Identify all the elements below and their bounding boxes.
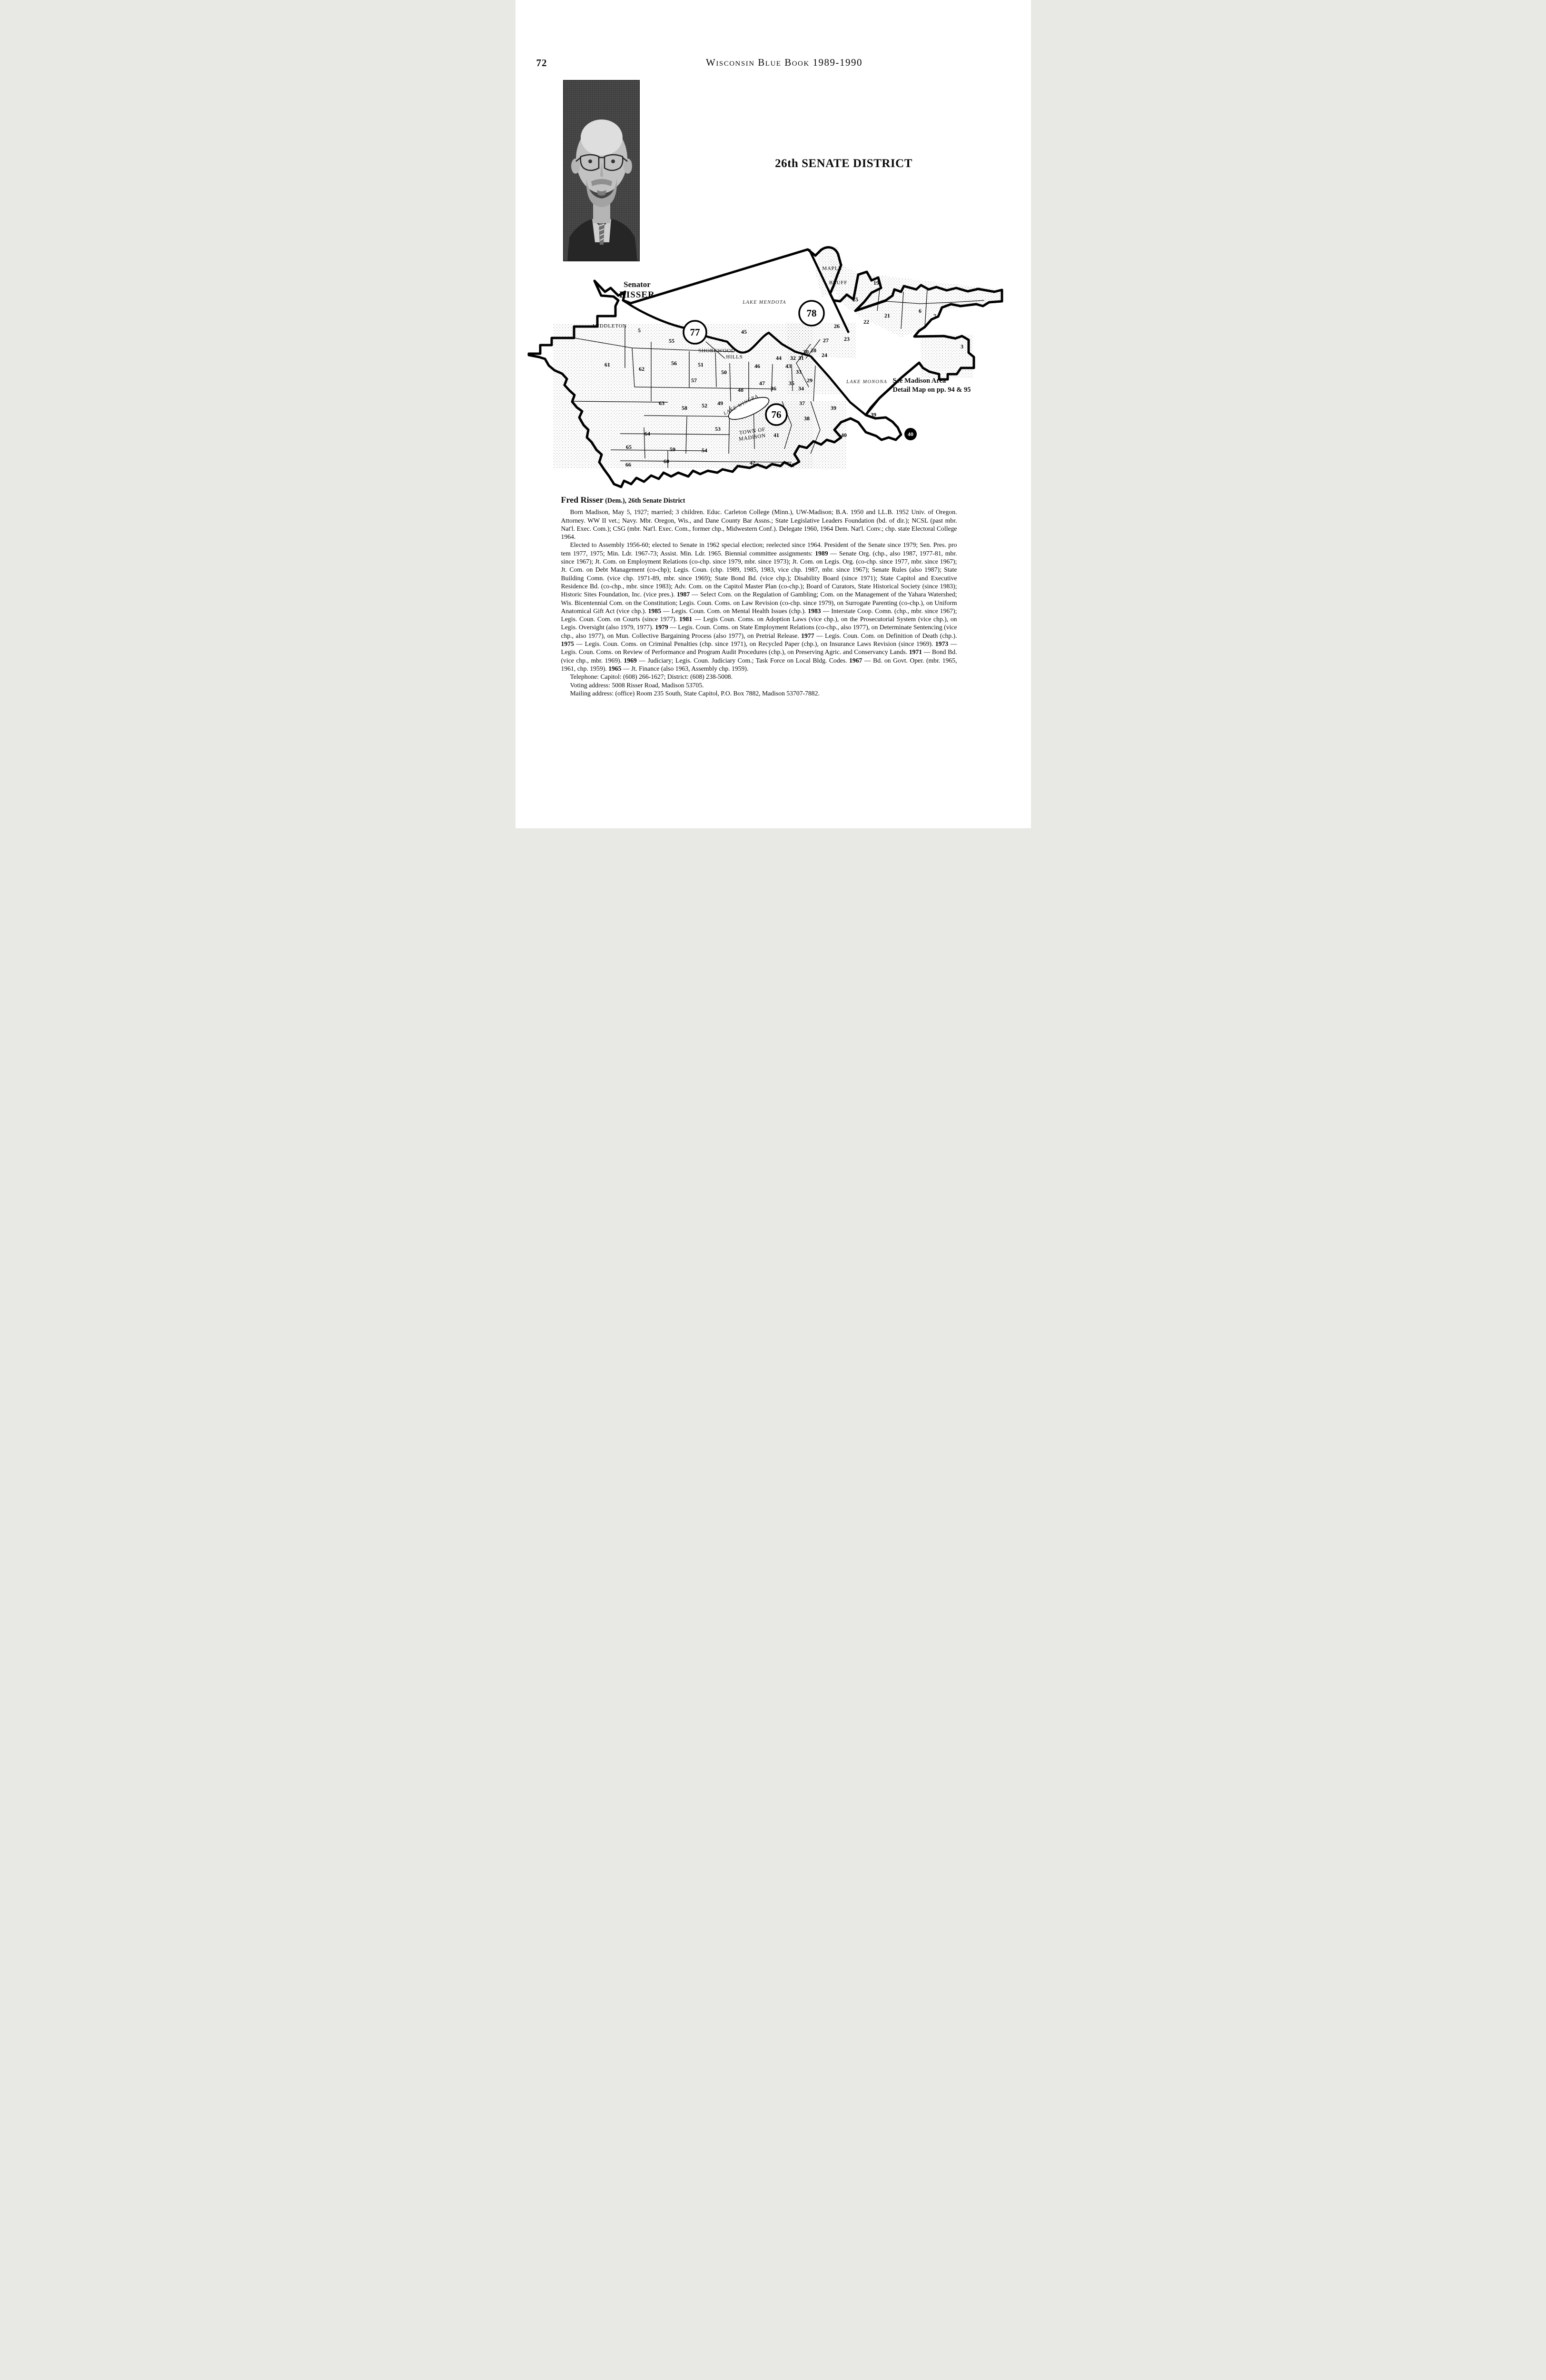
ward-number-29: 29: [807, 377, 813, 384]
ward-number-50: 50: [721, 369, 727, 376]
ward-number-63: 63: [659, 400, 664, 407]
ward-number-41: 41: [773, 432, 779, 438]
ward-number-53: 53: [715, 426, 721, 432]
ward-number-44: 44: [776, 355, 782, 361]
district-title: 26th SENATE DISTRICT: [775, 157, 912, 170]
place-label: MIDDLETON: [592, 323, 626, 329]
bio-paragraph-personal: Born Madison, May 5, 1927; married; 3 ch…: [561, 508, 957, 541]
ward-number-66: 66: [625, 461, 631, 468]
ward-number-64: 64: [644, 430, 650, 437]
map-note-line1: See Madison Area: [893, 377, 971, 386]
ward-number-32: 32: [790, 355, 796, 361]
book-page: 72 Wisconsin Blue Book 1989-1990 26th SE…: [515, 0, 1031, 828]
ward-number-62: 62: [639, 366, 644, 372]
map-detail-note: See Madison Area Detail Map on pp. 94 & …: [893, 377, 971, 395]
ward-number-3: 3: [961, 343, 963, 350]
ward-number-37: 37: [799, 400, 805, 407]
ward-number-42: 42: [750, 459, 755, 466]
ward-number-48: 48: [738, 387, 743, 393]
ward-number-40: 40: [908, 431, 913, 437]
ward-number-40: 40: [841, 432, 847, 438]
district-map: LAKE MENDOTALAKE MONONALAKE WINGRAMIDDLE…: [525, 244, 1020, 503]
senator-photo-illustration: [564, 80, 639, 261]
bio-name: Fred Risser: [561, 495, 604, 505]
ward-number-38: 38: [804, 415, 810, 422]
senator-photo: [563, 80, 640, 261]
voting-address-line: Voting address: 5008 Risser Road, Madiso…: [561, 681, 957, 689]
biography-section: Fred Risser (Dem.), 26th Senate District…: [561, 496, 957, 697]
place-label: SHOREWOOD: [698, 348, 735, 354]
ward-number-55: 55: [669, 337, 674, 344]
ward-number-5: 5: [638, 327, 641, 334]
running-header: Wisconsin Blue Book 1989-1990: [706, 57, 862, 69]
ward-number-35: 35: [789, 380, 794, 387]
bio-heading: Fred Risser (Dem.), 26th Senate District: [561, 496, 957, 505]
ward-number-6: 6: [919, 307, 922, 314]
ward-number-22: 22: [863, 318, 869, 325]
ward-number-45: 45: [741, 328, 747, 335]
ward-number-21: 21: [884, 312, 890, 319]
ward-number-56: 56: [671, 360, 677, 367]
ward-number-26: 26: [834, 323, 840, 329]
ward-number-19: 19: [873, 279, 879, 286]
ward-number-47: 47: [759, 380, 765, 387]
ward-number-27: 27: [823, 337, 829, 344]
ward-number-7: 7: [933, 313, 936, 319]
assembly-district-number-77: 77: [690, 327, 700, 338]
ward-number-39: 39: [831, 405, 836, 411]
ward-number-49: 49: [717, 400, 723, 407]
ward-number-23: 23: [844, 336, 850, 342]
lake-label: LAKE MONONA: [846, 379, 887, 385]
ward-number-59: 59: [670, 446, 675, 453]
ward-number-34: 34: [798, 385, 804, 392]
telephone-line: Telephone: Capitol: (608) 266-1627; Dist…: [561, 673, 957, 681]
assembly-district-number-76: 76: [771, 409, 781, 420]
assembly-district-number-78: 78: [806, 307, 816, 319]
ward-number-43: 43: [785, 363, 791, 369]
ward-number-36: 36: [771, 385, 776, 392]
page-number: 72: [536, 57, 547, 69]
ward-number-60: 60: [664, 458, 669, 465]
bio-paragraph-career: Elected to Assembly 1956-60; elected to …: [561, 541, 957, 673]
ward-number-41: 41: [789, 462, 794, 468]
ward-number-52: 52: [702, 402, 707, 409]
ward-number-39: 39: [871, 411, 876, 418]
ward-number-33: 33: [796, 368, 802, 375]
place-label: MAPLE: [822, 266, 842, 271]
ward-number-65: 65: [626, 444, 632, 450]
place-label: BLUFF: [829, 280, 847, 286]
contact-block: Telephone: Capitol: (608) 266-1627; Dist…: [561, 673, 957, 697]
map-note-line2: Detail Map on pp. 94 & 95: [893, 386, 971, 395]
ward-number-31: 31: [798, 355, 804, 361]
ward-number-58: 58: [682, 405, 687, 411]
lake-label: LAKE MENDOTA: [742, 300, 786, 305]
ward-number-28: 28: [811, 347, 816, 354]
ward-number-46: 46: [754, 363, 760, 369]
ward-number-57: 57: [691, 377, 697, 384]
ward-number-25: 25: [852, 296, 858, 303]
district-map-svg: LAKE MENDOTALAKE MONONALAKE WINGRAMIDDLE…: [525, 244, 1020, 503]
place-label: HILLS: [726, 354, 743, 360]
bio-name-suffix: (Dem.), 26th Senate District: [604, 497, 685, 505]
ward-number-54: 54: [702, 447, 707, 454]
ward-number-30: 30: [803, 348, 809, 355]
mailing-address-line: Mailing address: (office) Room 235 South…: [561, 689, 957, 697]
ward-number-24: 24: [822, 352, 827, 358]
ward-number-51: 51: [698, 361, 704, 368]
ward-number-61: 61: [605, 361, 610, 368]
